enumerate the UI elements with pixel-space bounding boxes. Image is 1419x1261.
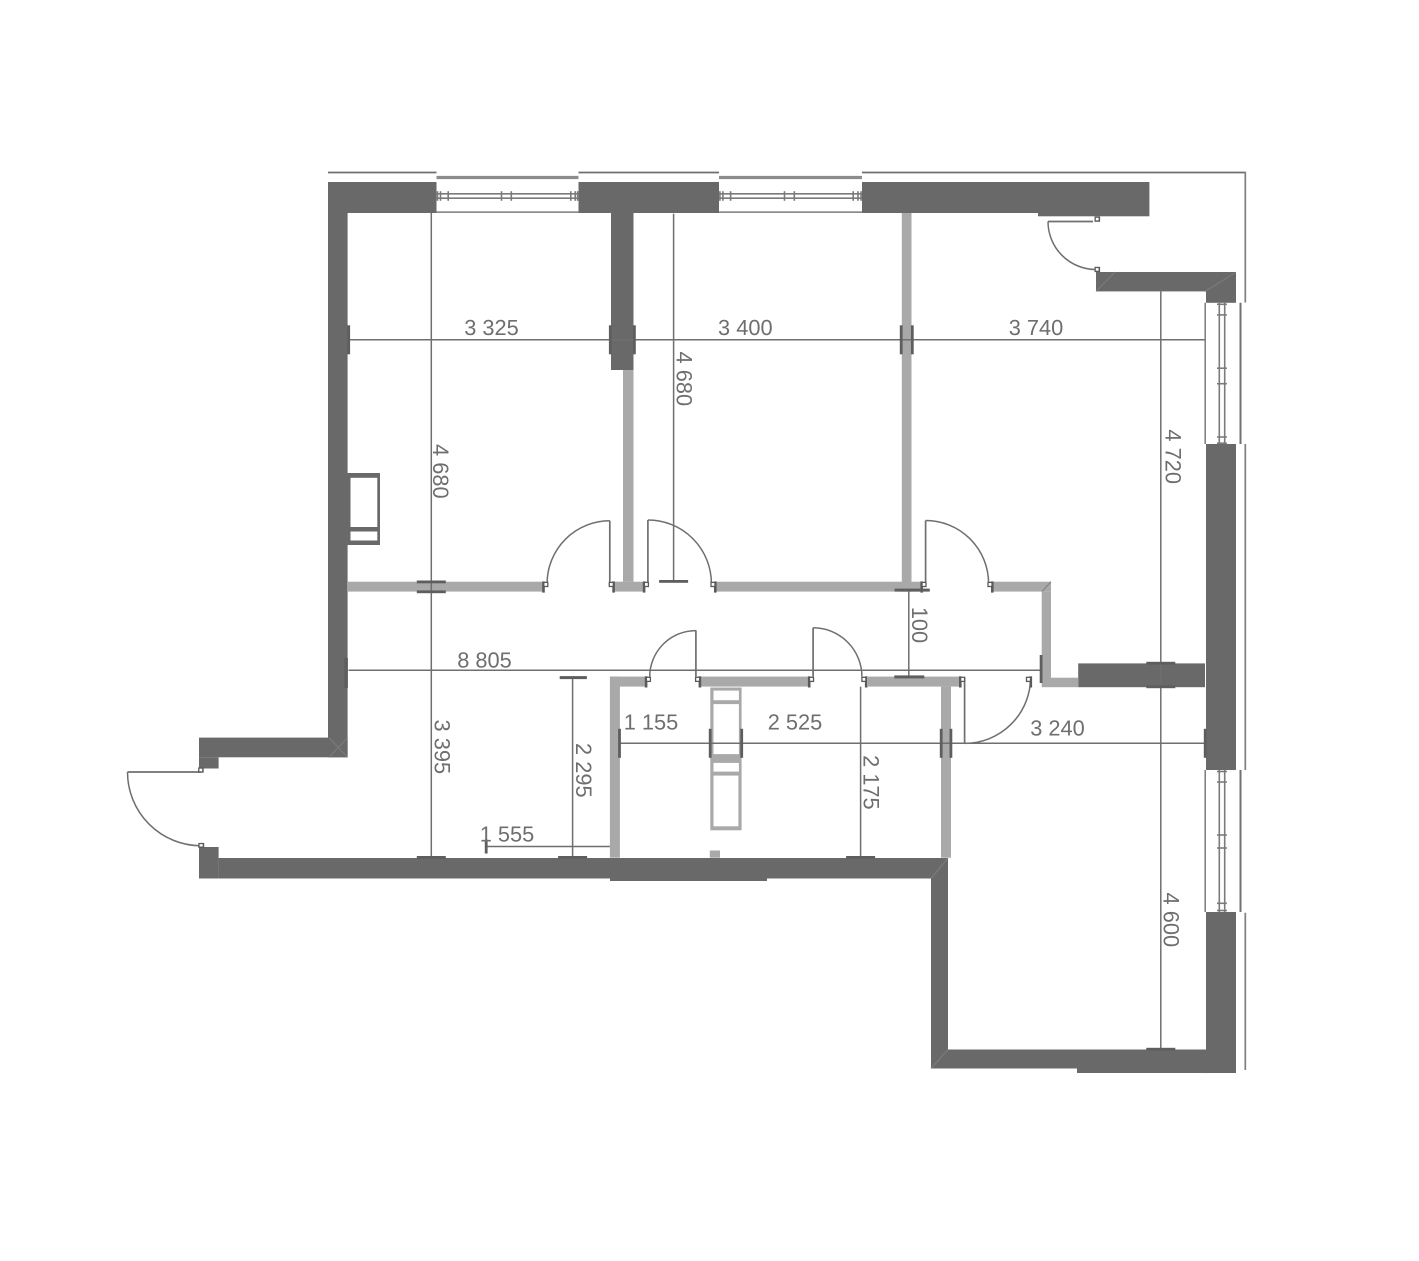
svg-text:4 720: 4 720 <box>1160 429 1185 484</box>
svg-text:4 680: 4 680 <box>671 352 696 407</box>
svg-text:1 555: 1 555 <box>480 821 535 846</box>
svg-text:2 295: 2 295 <box>571 743 596 798</box>
svg-text:3 395: 3 395 <box>429 720 454 775</box>
svg-text:3 400: 3 400 <box>718 315 773 340</box>
svg-text:2 175: 2 175 <box>859 755 884 810</box>
svg-text:2 525: 2 525 <box>768 709 823 734</box>
svg-text:8 805: 8 805 <box>457 647 512 672</box>
svg-text:3 740: 3 740 <box>1009 315 1064 340</box>
svg-text:3 325: 3 325 <box>464 315 519 340</box>
svg-text:100: 100 <box>907 607 932 643</box>
svg-text:3 240: 3 240 <box>1030 715 1085 740</box>
svg-text:1 155: 1 155 <box>624 709 679 734</box>
svg-text:4 600: 4 600 <box>1158 893 1183 948</box>
svg-text:4 680: 4 680 <box>428 444 453 499</box>
